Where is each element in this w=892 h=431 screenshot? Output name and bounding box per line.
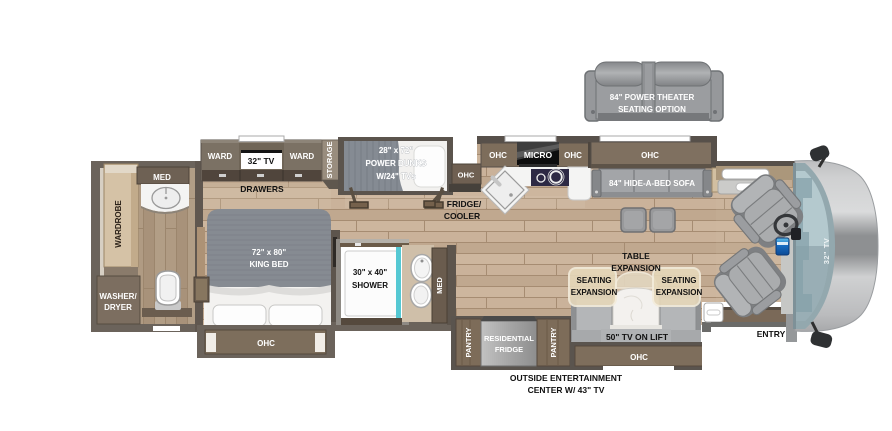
svg-text:30" x 40": 30" x 40": [353, 268, 387, 277]
svg-text:DRYER: DRYER: [104, 303, 132, 312]
svg-text:SEATING: SEATING: [662, 276, 697, 285]
svg-text:84" HIDE-A-BED SOFA: 84" HIDE-A-BED SOFA: [609, 179, 695, 188]
svg-text:OHC: OHC: [641, 151, 659, 160]
svg-text:WASHER/: WASHER/: [99, 292, 137, 301]
svg-text:WARD: WARD: [290, 152, 315, 161]
svg-text:KING BED: KING BED: [249, 260, 288, 269]
svg-text:84" POWER THEATER: 84" POWER THEATER: [610, 93, 695, 102]
svg-text:RESIDENTIAL: RESIDENTIAL: [484, 334, 534, 343]
svg-text:MED: MED: [153, 173, 171, 182]
svg-text:SHOWER: SHOWER: [352, 281, 388, 290]
svg-text:OHC: OHC: [630, 353, 648, 362]
svg-text:STORAGE: STORAGE: [325, 142, 334, 179]
svg-text:WARD: WARD: [208, 152, 233, 161]
svg-text:SEATING OPTION: SEATING OPTION: [618, 105, 686, 114]
svg-text:ENTRY: ENTRY: [757, 329, 786, 339]
svg-text:32" TV: 32" TV: [822, 238, 831, 265]
svg-text:MICRO: MICRO: [524, 150, 553, 160]
svg-text:50" TV ON LIFT: 50" TV ON LIFT: [606, 332, 669, 342]
svg-text:POWER BUNKS: POWER BUNKS: [366, 159, 428, 168]
svg-text:OHC: OHC: [257, 339, 275, 348]
svg-text:SEATING: SEATING: [577, 276, 612, 285]
svg-text:28" x 72": 28" x 72": [379, 146, 413, 155]
svg-text:OUTSIDE ENTERTAINMENT: OUTSIDE ENTERTAINMENT: [510, 373, 623, 383]
svg-text:MED: MED: [435, 277, 444, 294]
svg-text:COOLER: COOLER: [444, 211, 480, 221]
svg-text:PANTRY: PANTRY: [549, 328, 558, 358]
svg-text:72" x 80": 72" x 80": [252, 248, 286, 257]
svg-text:FRIDGE: FRIDGE: [495, 345, 523, 354]
svg-text:FRIDGE/: FRIDGE/: [447, 199, 482, 209]
svg-text:EXPANSION: EXPANSION: [571, 288, 618, 297]
svg-text:OHC: OHC: [458, 171, 475, 180]
svg-text:TABLE: TABLE: [622, 251, 650, 261]
svg-text:DRAWERS: DRAWERS: [240, 184, 284, 194]
svg-text:PANTRY: PANTRY: [464, 328, 473, 358]
svg-text:32" TV: 32" TV: [248, 156, 275, 166]
svg-text:W/24" TVs: W/24" TVs: [376, 172, 416, 181]
svg-text:OHC: OHC: [564, 151, 582, 160]
svg-text:EXPANSION: EXPANSION: [611, 263, 660, 273]
svg-text:WARDROBE: WARDROBE: [114, 200, 123, 248]
svg-text:EXPANSION: EXPANSION: [656, 288, 703, 297]
svg-text:OHC: OHC: [489, 151, 507, 160]
svg-text:CENTER W/ 43" TV: CENTER W/ 43" TV: [528, 385, 605, 395]
